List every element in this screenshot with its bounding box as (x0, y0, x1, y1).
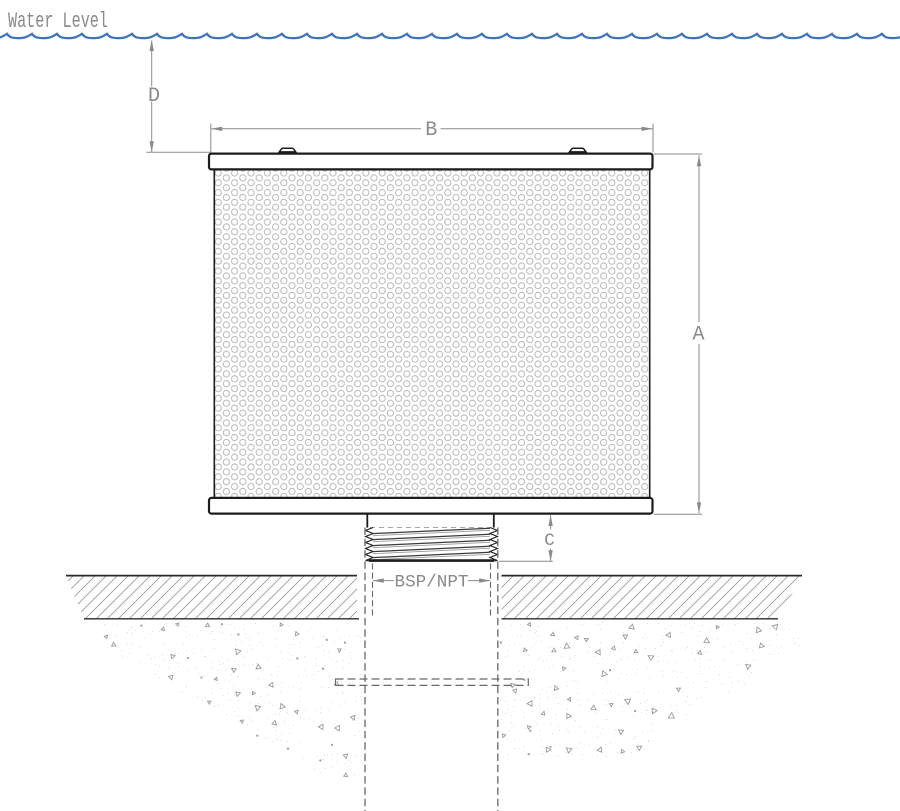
svg-text:A: A (692, 324, 704, 347)
svg-text:Water Level: Water Level (8, 9, 108, 34)
svg-text:D: D (148, 85, 160, 108)
svg-text:C: C (544, 531, 555, 551)
svg-text:BSP/NPT: BSP/NPT (395, 573, 469, 593)
svg-text:B: B (425, 119, 437, 142)
